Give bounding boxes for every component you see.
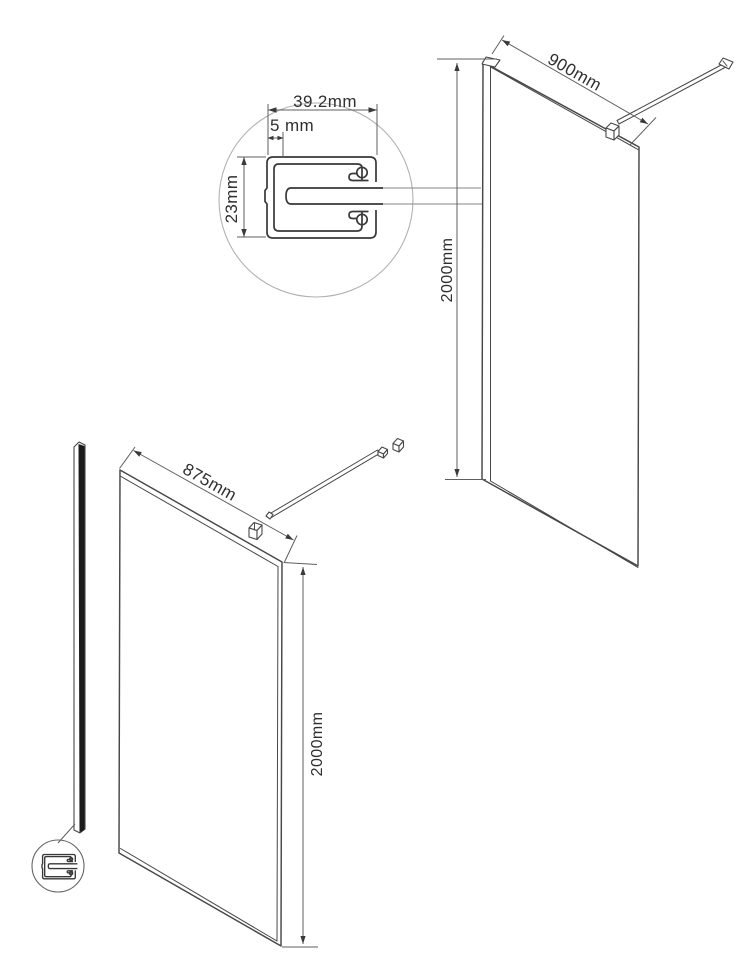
exploded-width-label: 875mm [179, 459, 239, 504]
shower-screen-diagram: 39.2mm 5 mm 23mm [0, 0, 745, 967]
wall-mount-bracket [393, 439, 404, 453]
glass-slot-leader-lines [383, 188, 482, 204]
profile-width-label: 39.2mm [293, 92, 357, 111]
exploded-support-bar [266, 447, 388, 519]
bar-top-end-cap [378, 447, 388, 458]
bar-end-cap [719, 58, 733, 69]
arrow-down-right-icon [285, 534, 293, 540]
profile-wall-thickness-label: 5 mm [270, 116, 314, 135]
arrow-up-icon [241, 157, 246, 165]
assembled-view: 900mm 2000mm [437, 36, 733, 568]
exploded-glass-panel [119, 470, 282, 946]
wall-profile-bar [74, 442, 85, 833]
glass-clamp [249, 523, 262, 540]
assembled-width-label: 900mm [544, 49, 604, 94]
dimension-profile-height: 23mm [222, 157, 266, 237]
support-bar-bracket [606, 123, 619, 140]
assembled-support-bar [617, 58, 733, 124]
arrow-up-left-icon [502, 40, 510, 46]
wall-profile-cross-section [265, 157, 383, 238]
technical-drawing-page: 39.2mm 5 mm 23mm [0, 0, 745, 967]
arrow-down-right-icon [640, 118, 648, 124]
arrow-down-icon [454, 469, 459, 477]
dimension-profile-wall-thickness: 5 mm [268, 116, 315, 158]
arrow-up-left-icon [134, 451, 142, 457]
dimension-exploded-height: 2000mm [282, 563, 326, 948]
arrow-right-icon [369, 107, 378, 112]
detail-circle [219, 103, 413, 297]
profile-height-label: 23mm [222, 175, 241, 224]
mini-detail-circle [32, 840, 84, 892]
mini-profile-cross-section [42, 855, 77, 879]
assembled-height-label: 2000mm [439, 238, 456, 303]
exploded-height-label: 2000mm [309, 712, 326, 777]
arrow-left-icon [268, 107, 277, 112]
arrow-up-icon [454, 63, 459, 71]
arrow-down-icon [300, 936, 305, 944]
wall-profile-bar-face [79, 444, 85, 833]
exploded-view: 875mm 2000mm [32, 439, 404, 948]
arrow-up-icon [300, 567, 305, 575]
arrow-down-icon [241, 229, 246, 237]
bar-end-cap [266, 512, 273, 519]
